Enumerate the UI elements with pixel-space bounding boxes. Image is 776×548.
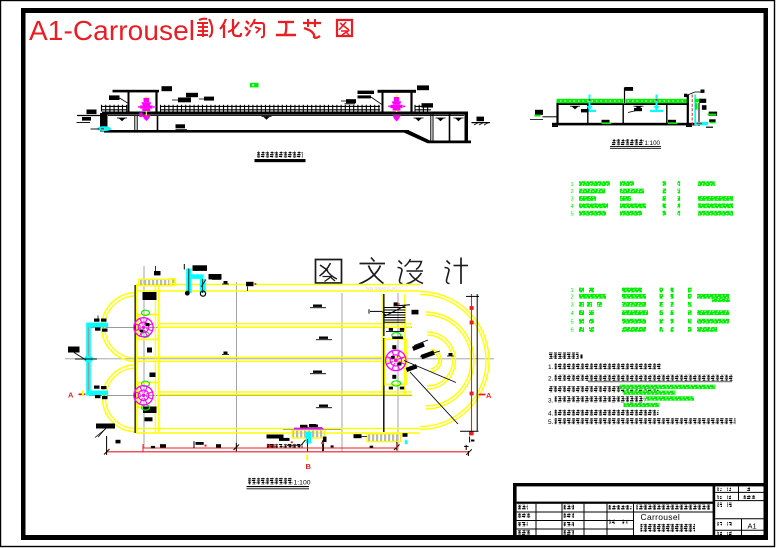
svg-text:5: 5 — [571, 211, 574, 217]
svg-text:A: A — [68, 391, 74, 400]
svg-text:1.: 1. — [548, 364, 554, 371]
svg-text:Carrousel: Carrousel — [641, 512, 681, 522]
svg-text:5.: 5. — [548, 419, 554, 426]
svg-text:3: 3 — [571, 303, 574, 309]
svg-text:A1: A1 — [748, 522, 757, 531]
svg-text:4: 4 — [571, 311, 574, 317]
svg-text:4.: 4. — [548, 410, 554, 417]
svg-text:5: 5 — [571, 319, 574, 325]
svg-text:A: A — [486, 391, 492, 400]
svg-text:1: 1 — [571, 182, 574, 188]
svg-text:2: 2 — [571, 189, 574, 195]
svg-text:4: 4 — [571, 204, 574, 210]
svg-text:1: 1 — [571, 288, 574, 294]
svg-text:2.: 2. — [548, 376, 554, 383]
svg-text:1:100: 1:100 — [294, 480, 311, 487]
svg-text:6: 6 — [571, 328, 574, 334]
svg-text:A1-Carrousel: A1-Carrousel — [29, 15, 195, 46]
svg-text:B: B — [306, 462, 312, 471]
svg-text:3.: 3. — [548, 397, 554, 404]
svg-text:2: 2 — [571, 295, 574, 301]
svg-text:3: 3 — [571, 197, 574, 203]
